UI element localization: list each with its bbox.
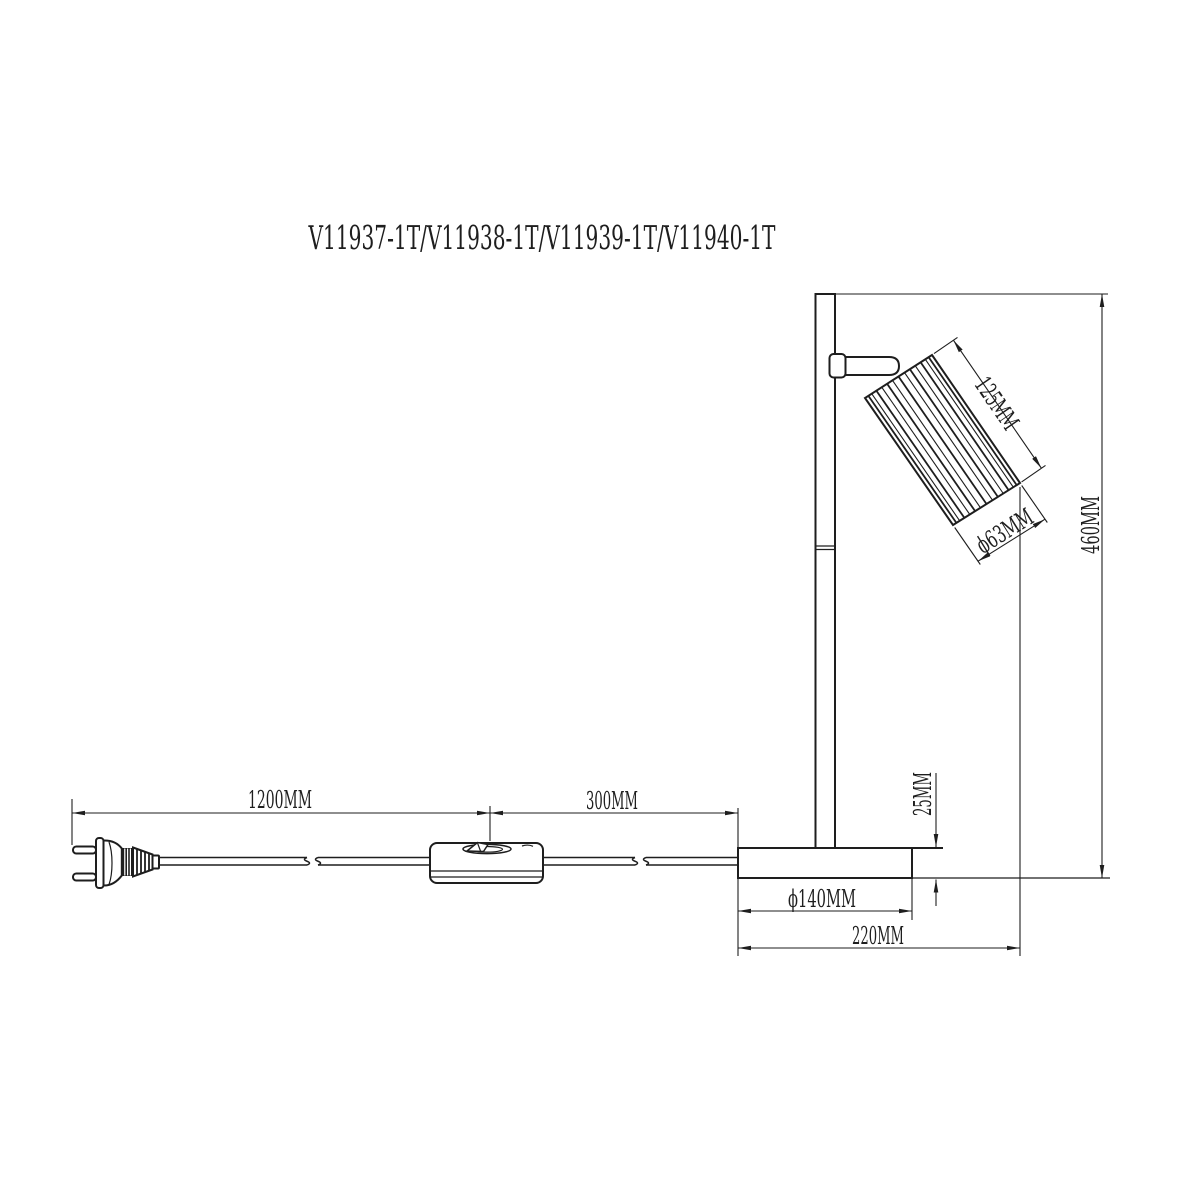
dim-25mm: 25MM: [909, 772, 937, 906]
dim-label-25mm: 25MM: [909, 772, 937, 816]
plug-body: [104, 840, 122, 885]
plug-pin: [73, 847, 96, 854]
technical-drawing: 1200MM 300MM 25MM ϕ140MM 220MM: [0, 0, 1200, 1200]
plug-face: [96, 838, 104, 888]
dim-300mm: 300MM: [490, 787, 738, 847]
product-codes-title: V11937-1T/V11938-1T/V11939-1T/V11940-1T: [308, 218, 776, 257]
dim-label-460mm: 460MM: [1077, 496, 1105, 554]
lamp-base: [738, 848, 1110, 878]
dim-label-220mm: 220MM: [852, 922, 904, 950]
power-plug: [73, 838, 159, 888]
pivot-arm: [830, 354, 900, 378]
dim-1200mm: 1200MM: [72, 786, 490, 845]
cord-break-icon: [316, 858, 321, 866]
inline-switch: [430, 843, 543, 884]
plug-pin: [73, 874, 96, 881]
dim-label-1200mm: 1200MM: [248, 786, 312, 814]
plug-strain-relief: [122, 848, 159, 877]
pivot-cap: [830, 354, 846, 378]
dim-220mm: 220MM: [738, 487, 1020, 956]
cord-break-icon: [633, 858, 638, 866]
dim-label-300mm: 300MM: [586, 787, 638, 815]
dim-460mm: 460MM: [835, 294, 1108, 878]
cord-break-icon: [644, 858, 649, 866]
dim-label-140mm: ϕ140MM: [788, 885, 856, 913]
cord-break-icon: [305, 858, 310, 866]
dim-label-63mm: ϕ63MM: [971, 503, 1038, 560]
